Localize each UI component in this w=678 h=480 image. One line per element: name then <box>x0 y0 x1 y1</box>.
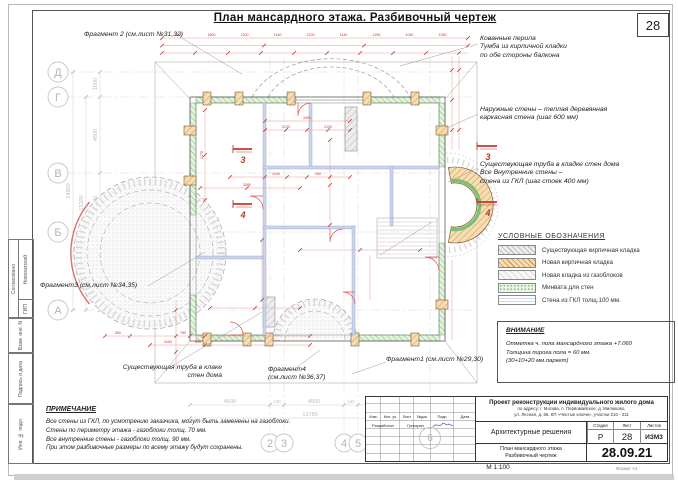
svg-text:3080: 3080 <box>243 183 251 187</box>
svg-text:1040: 1040 <box>272 172 280 176</box>
svg-text:14800: 14800 <box>66 183 72 198</box>
svg-text:4500: 4500 <box>224 399 236 405</box>
annotation-fragment3: Фрагмент3 (см.лист №34,35) <box>40 282 137 290</box>
stamp-podpis: Подпись и дата <box>8 352 34 405</box>
attention-title: ВНИМАНИЕ <box>506 327 666 334</box>
legend-title: УСЛОВНЫЕ ОБОЗНАЧЕНИЯ <box>498 233 670 240</box>
section-4-label: 4 <box>239 210 245 220</box>
legend: УСЛОВНЫЕ ОБОЗНАЧЕНИЯ Существующая кирпич… <box>498 233 670 308</box>
notes-block: ПРИМЕЧАНИЕ Все стены из ГКЛ, по усмотрен… <box>46 406 366 453</box>
stamp-vzam: Взам. инв. N <box>8 317 34 354</box>
svg-text:2130: 2130 <box>282 125 290 129</box>
swatch-gas-block <box>498 270 536 280</box>
format-label: Формат А3 <box>616 466 637 471</box>
svg-text:550: 550 <box>115 331 121 335</box>
svg-text:1040: 1040 <box>406 33 414 37</box>
scale-label: М 1:100 <box>468 464 528 471</box>
svg-text:4500: 4500 <box>308 399 320 405</box>
project-name: Проект реконструкции индивидуального жил… <box>476 397 667 422</box>
grid-bubble-6: 6 <box>419 427 441 449</box>
svg-text:1200: 1200 <box>241 33 249 37</box>
swatch-existing-brick <box>498 245 536 255</box>
annotation-fragment1: Фрагмент1 (см.лист №29,30) <box>386 356 483 364</box>
annotation-railing: Кованные перила Тумба из кирпичной кладк… <box>480 35 567 60</box>
legend-item: Новая кладка из газоблоков <box>498 270 670 280</box>
stage-value: Р <box>587 430 613 444</box>
svg-text:1140: 1140 <box>274 33 282 37</box>
developer-label: Разработал <box>366 423 400 428</box>
annotation-chimney-right: Существующая труба в кладке стен дома Вс… <box>480 161 619 186</box>
row-label-g: Г <box>55 92 61 104</box>
annotation-exterior-walls: Наружные стены – теплая деревянная карка… <box>480 106 607 123</box>
annotation-fragment4: Фрагмент4 (см.лист №36,37) <box>268 366 325 383</box>
svg-text:1140: 1140 <box>340 33 348 37</box>
top-balcony-arc <box>252 59 410 97</box>
swatch-new-brick <box>498 258 536 268</box>
gip-label: ГИП <box>23 304 29 314</box>
svg-text:2100: 2100 <box>307 33 315 37</box>
svg-text:950: 950 <box>315 172 321 176</box>
revision-table: Изм. Кол. уч. Лист №док. Подп. Дата Разр… <box>366 397 476 461</box>
svg-text:1600: 1600 <box>93 78 99 90</box>
row-label-b: Б <box>54 227 61 239</box>
sheet-value: 28 <box>613 430 640 444</box>
row-label-v: В <box>54 168 61 180</box>
section-3-label: 3 <box>240 155 245 165</box>
drawing-sheet: Д Г В Б А 2 3 4 5 1600 4800 3600 4800 13… <box>0 0 678 480</box>
gip-name: Новохатский <box>23 255 29 284</box>
stage-sheet-grid: Стадия Лист Листов Р 28 ИЗМ3 <box>587 422 667 443</box>
stamp-approved: Согласовано Новохатский ГИП <box>8 239 34 319</box>
svg-text:3400: 3400 <box>303 116 311 120</box>
title-block: Изм. Кол. уч. Лист №док. Подп. Дата Разр… <box>365 396 668 462</box>
row-label-a: А <box>54 305 62 317</box>
svg-text:780: 780 <box>180 331 186 335</box>
annotation-chimney-left: Существующая труба в клаке стен дома <box>92 364 222 381</box>
stamp-inv: Инв. № подл. <box>8 403 34 464</box>
svg-text:640: 640 <box>195 340 201 344</box>
bottom-bay <box>273 299 357 341</box>
legend-item: Стена из ГКЛ толщ.100 мм. <box>498 295 670 305</box>
swatch-mineral-wool <box>498 283 536 293</box>
sheets-value: ИЗМ3 <box>640 430 667 444</box>
paper-shadow <box>14 474 674 480</box>
row-label-d: Д <box>54 67 62 79</box>
svg-text:4150: 4150 <box>164 340 172 344</box>
svg-text:2475: 2475 <box>200 151 204 159</box>
attention-box: ВНИМАНИЕ Отметка ч. пола мансардного эта… <box>497 321 675 383</box>
swatch-gkl-wall <box>498 295 536 305</box>
legend-item: Новая кирпичная кладка <box>498 258 670 268</box>
date-stamp: 28.09.21 <box>587 444 667 461</box>
sheet-title: План мансардного этажа. Разбивочный черт… <box>160 12 550 24</box>
notes-title: ПРИМЕЧАНИЕ <box>46 406 366 413</box>
svg-text:140: 140 <box>347 399 355 404</box>
svg-text:2130: 2130 <box>324 125 332 129</box>
svg-text:4800: 4800 <box>93 129 99 141</box>
sheet-number-box: 28 <box>637 13 669 37</box>
discipline: Архитектурные решения <box>476 422 587 443</box>
svg-text:1250: 1250 <box>439 33 447 37</box>
legend-item: Существующая кирпичная кладка <box>498 245 670 255</box>
document-name: План мансардного этажа Разбивочный черте… <box>476 444 587 461</box>
svg-text:1800: 1800 <box>208 33 216 37</box>
stairs <box>377 218 437 258</box>
legend-item: Минвата для стен <box>498 283 670 293</box>
section-4-label-right: 4 <box>484 208 490 218</box>
annotation-fragment2: Фрагмент 2 (см.лист №31,32) <box>84 31 183 39</box>
svg-text:140: 140 <box>273 399 281 404</box>
svg-text:1250: 1250 <box>373 33 381 37</box>
